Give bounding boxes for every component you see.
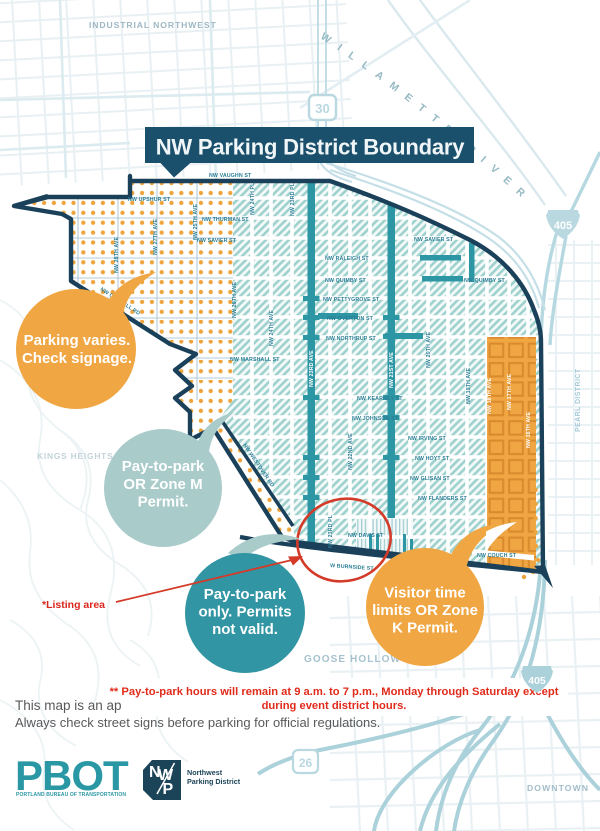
svg-text:NW SAVIER ST: NW SAVIER ST [414, 237, 454, 243]
svg-text:NW GLISAN ST: NW GLISAN ST [410, 476, 450, 482]
svg-text:NW QUIMBY ST: NW QUIMBY ST [464, 278, 505, 284]
svg-text:NW DAVIS ST: NW DAVIS ST [348, 533, 384, 539]
svg-text:405: 405 [528, 675, 546, 687]
svg-text:NW FLANDERS ST: NW FLANDERS ST [418, 496, 467, 502]
svg-text:NW 23RD PL: NW 23RD PL [290, 182, 296, 216]
svg-text:Parking varies.: Parking varies. [24, 332, 131, 349]
svg-text:only. Permits: only. Permits [198, 604, 291, 621]
svg-text:KINGS HEIGHTS: KINGS HEIGHTS [37, 451, 113, 461]
svg-text:NW PETTYGROVE ST: NW PETTYGROVE ST [323, 297, 380, 303]
svg-text:NW JOHNSON ST: NW JOHNSON ST [352, 416, 399, 422]
svg-text:NW SAVIER ST: NW SAVIER ST [197, 238, 237, 244]
svg-text:NW HOYT ST: NW HOYT ST [415, 456, 450, 462]
svg-text:NW Parking District Boundary: NW Parking District Boundary [156, 135, 466, 160]
svg-text:NW 26TH AVE: NW 26TH AVE [232, 282, 238, 318]
svg-text:*Listing area: *Listing area [42, 599, 105, 611]
svg-text:during event district hours.: during event district hours. [262, 700, 407, 712]
svg-text:OR Zone M: OR Zone M [123, 476, 202, 493]
svg-text:DOWNTOWN: DOWNTOWN [527, 783, 589, 793]
svg-text:NW COUCH ST: NW COUCH ST [477, 553, 517, 559]
svg-text:Pay-to-park: Pay-to-park [122, 458, 205, 475]
svg-text:NW 20TH AVE: NW 20TH AVE [426, 332, 432, 368]
svg-text:NW VAUGHN ST: NW VAUGHN ST [209, 173, 252, 179]
svg-text:NW UPSHUR ST: NW UPSHUR ST [128, 197, 171, 203]
svg-text:NW 18TH AVE: NW 18TH AVE [487, 378, 493, 414]
svg-text:Parking District: Parking District [187, 777, 241, 786]
svg-text:not valid.: not valid. [212, 621, 278, 638]
svg-text:NW 24TH PL: NW 24TH PL [250, 182, 256, 215]
svg-text:NW 16TH AVE: NW 16TH AVE [526, 412, 532, 448]
svg-text:NW RALEIGH ST: NW RALEIGH ST [325, 256, 369, 262]
svg-text:PEARL DISTRICT: PEARL DISTRICT [575, 368, 582, 432]
svg-text:limits OR Zone: limits OR Zone [372, 602, 478, 619]
svg-text:NW 21ST AVE: NW 21ST AVE [389, 352, 395, 388]
svg-text:30: 30 [315, 101, 329, 116]
svg-text:NW 19TH AVE: NW 19TH AVE [466, 368, 472, 404]
svg-text:GOOSE HOLLOW: GOOSE HOLLOW [304, 654, 401, 665]
svg-text:Visitor time: Visitor time [384, 585, 465, 602]
svg-text:Pay-to-park: Pay-to-park [204, 586, 287, 603]
svg-text:NW THURMAN ST: NW THURMAN ST [202, 217, 249, 223]
svg-text:Permit.: Permit. [138, 494, 189, 511]
svg-text:405: 405 [554, 220, 572, 232]
svg-text:NW 27TH AVE: NW 27TH AVE [153, 219, 159, 255]
svg-text:NW 22ND AVE: NW 22ND AVE [348, 433, 354, 470]
svg-text:NW 23RD AVE: NW 23RD AVE [309, 350, 315, 387]
svg-text:26: 26 [299, 756, 313, 770]
svg-text:NW 17TH AVE: NW 17TH AVE [507, 374, 513, 410]
svg-text:Check signage.: Check signage. [22, 350, 132, 367]
svg-text:P: P [163, 781, 174, 798]
svg-text:NW 28TH AVE: NW 28TH AVE [114, 237, 120, 273]
svg-text:Always check street signs befo: Always check street signs before parking… [15, 715, 380, 730]
svg-text:NW KEARNEY ST: NW KEARNEY ST [357, 396, 403, 402]
svg-text:NW IRVING ST: NW IRVING ST [408, 436, 447, 442]
svg-text:NW MARSHALL ST: NW MARSHALL ST [230, 357, 280, 363]
svg-text:INDUSTRIAL NORTHWEST: INDUSTRIAL NORTHWEST [89, 20, 217, 30]
svg-text:NW QUIMBY ST: NW QUIMBY ST [325, 278, 366, 284]
svg-text:NW 25TH AVE: NW 25TH AVE [193, 204, 199, 240]
svg-text:Northwest: Northwest [187, 768, 223, 777]
svg-text:NW 23RD PL: NW 23RD PL [328, 514, 334, 548]
svg-text:PORTLAND BUREAU OF TRANSPORTAT: PORTLAND BUREAU OF TRANSPORTATION [16, 792, 126, 798]
svg-text:** Pay-to-park hours will rema: ** Pay-to-park hours will remain at 9 a.… [110, 686, 559, 698]
svg-text:NW OVERTON ST: NW OVERTON ST [327, 316, 374, 322]
svg-text:K Permit.: K Permit. [392, 620, 458, 637]
svg-text:NW NORTHRUP ST: NW NORTHRUP ST [326, 336, 377, 342]
svg-text:NW 24TH AVE: NW 24TH AVE [269, 310, 275, 346]
